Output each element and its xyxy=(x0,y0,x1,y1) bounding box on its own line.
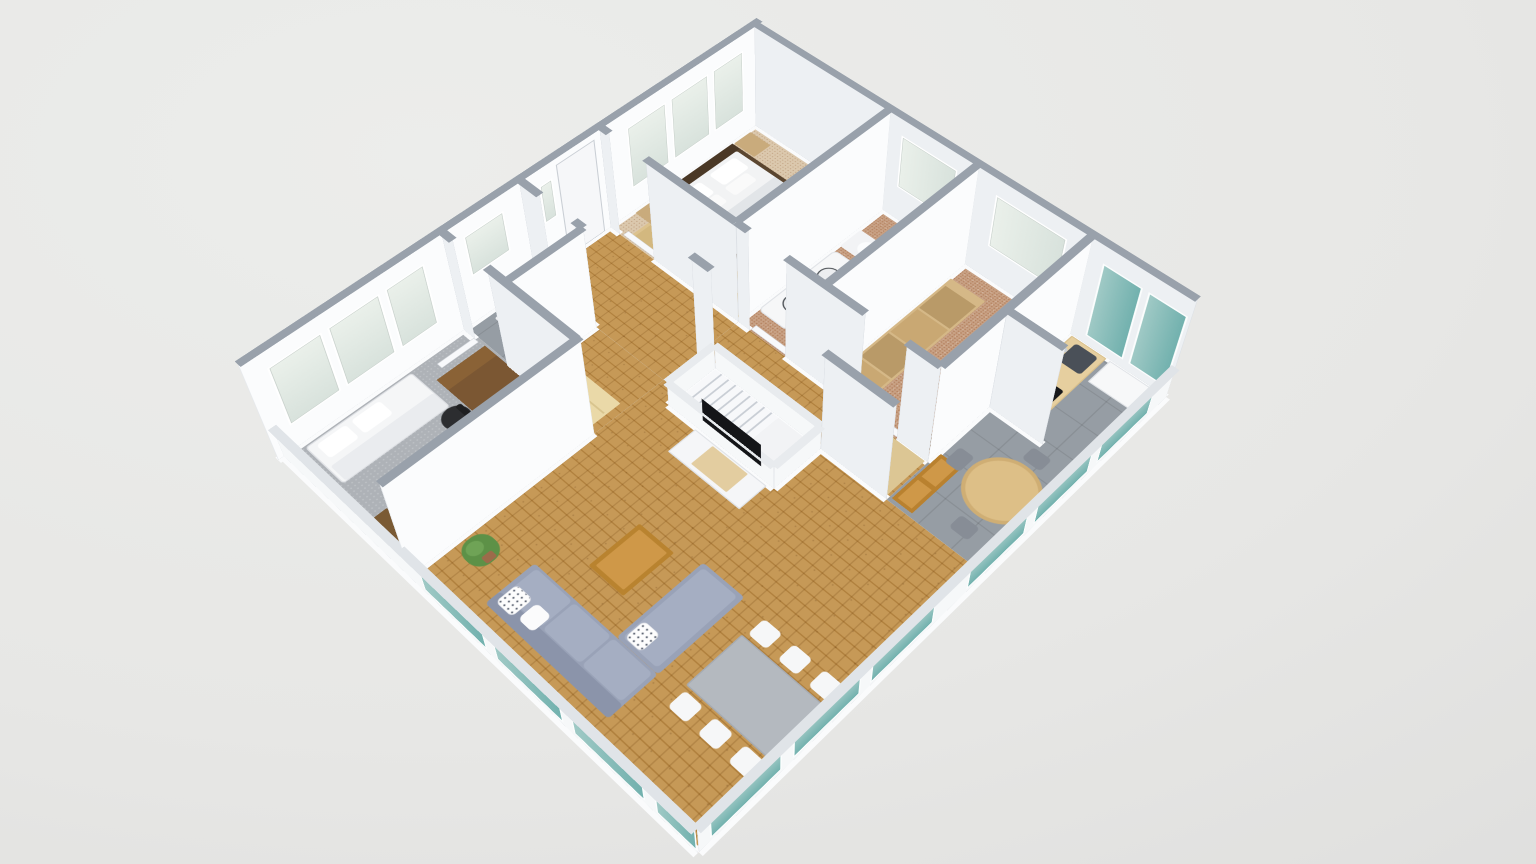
floorplan-viewer xyxy=(0,0,1536,864)
wall-exterior-north-win xyxy=(670,74,710,160)
floorplan-3d[interactable] xyxy=(273,119,1177,864)
wall-exterior-north-win xyxy=(385,264,439,349)
wall-exterior-north-win xyxy=(327,294,396,387)
wall-exterior-north-win xyxy=(267,332,341,425)
wall-exterior-north-win xyxy=(713,51,745,132)
